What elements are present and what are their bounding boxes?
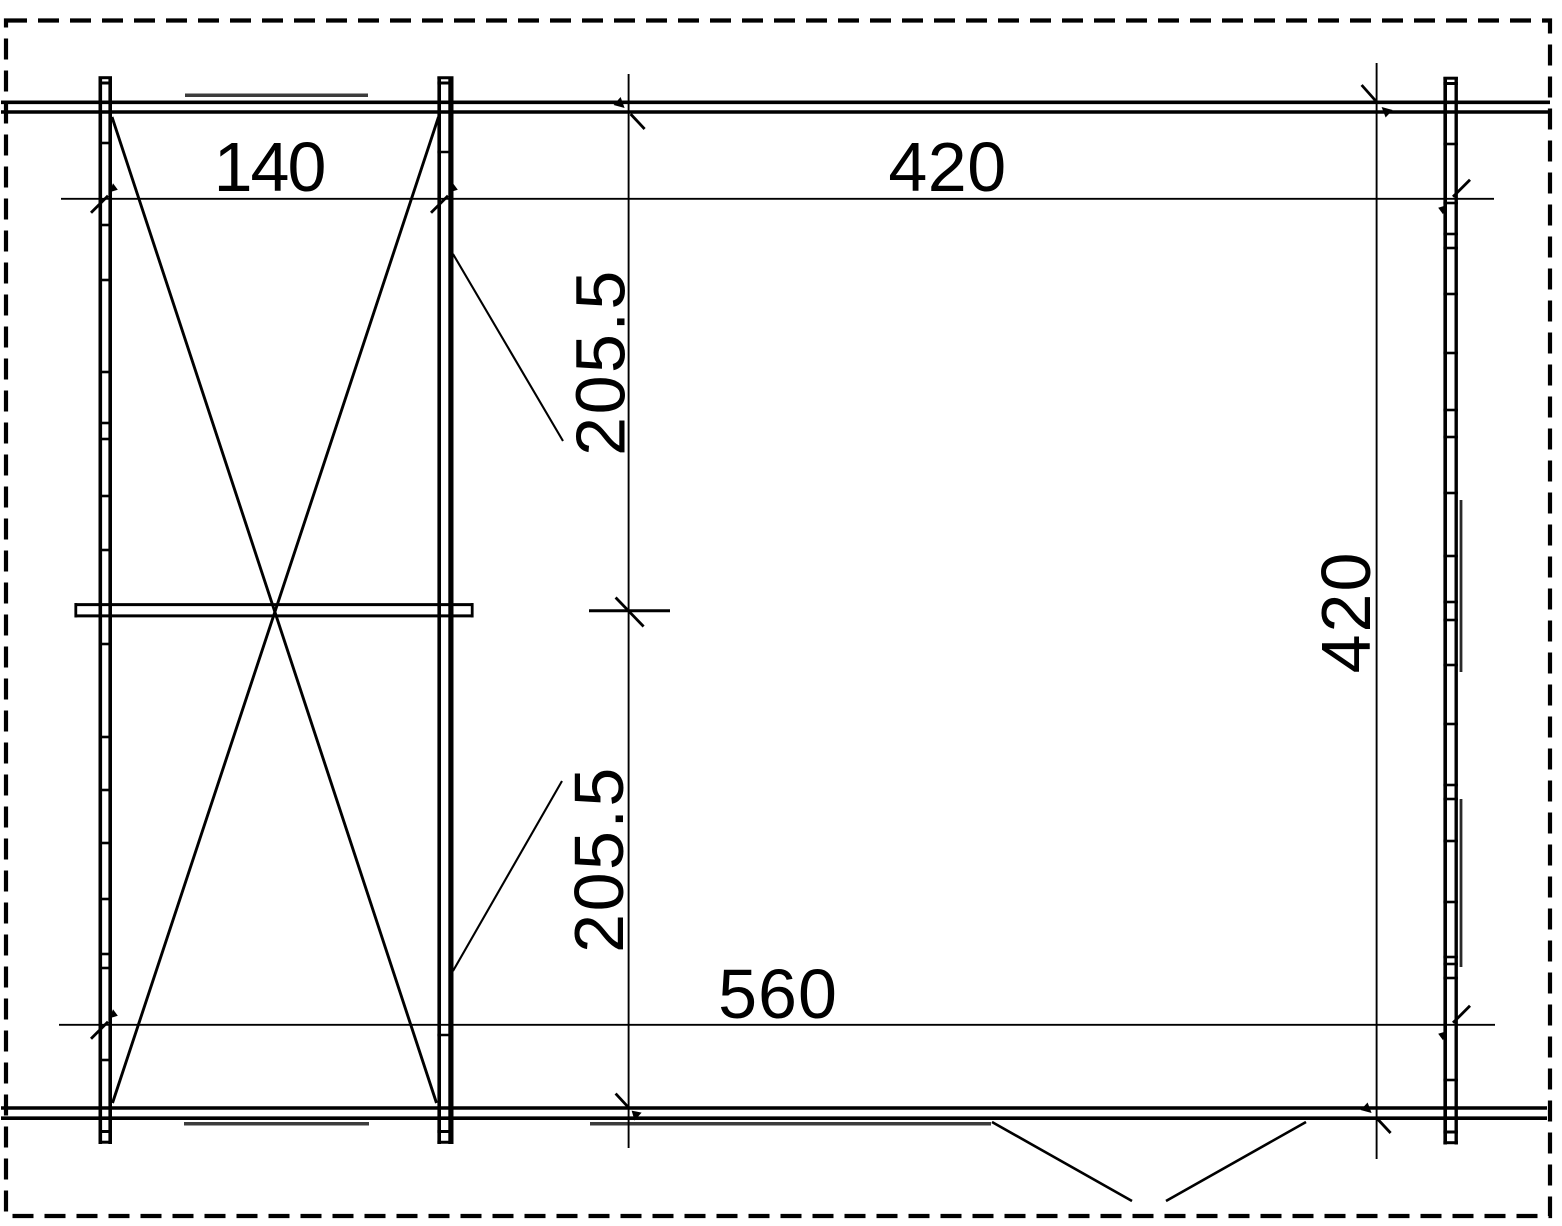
svg-text:140: 140 bbox=[214, 128, 325, 206]
svg-text:420: 420 bbox=[888, 128, 1006, 206]
svg-text:420: 420 bbox=[1307, 551, 1385, 674]
svg-text:205.5: 205.5 bbox=[560, 765, 638, 953]
svg-text:560: 560 bbox=[718, 955, 838, 1033]
svg-text:205.5: 205.5 bbox=[562, 268, 640, 456]
